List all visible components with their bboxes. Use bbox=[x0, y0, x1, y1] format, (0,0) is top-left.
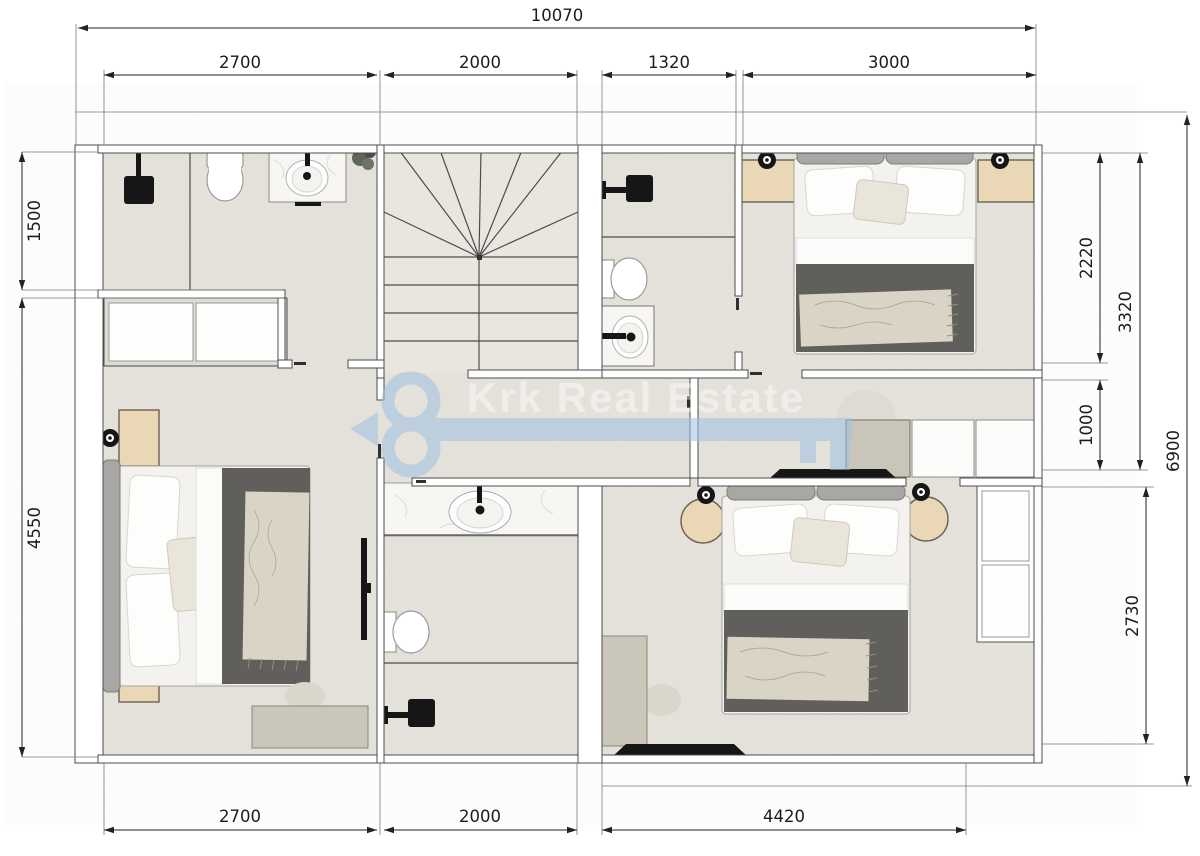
wardrobe bbox=[104, 298, 287, 366]
dim-label: 2000 bbox=[459, 53, 501, 72]
chair bbox=[643, 684, 681, 716]
lamp-icon bbox=[101, 429, 119, 447]
toilet-icon bbox=[384, 611, 429, 653]
dim-label: 1320 bbox=[648, 53, 690, 72]
dim-label: 3000 bbox=[868, 53, 910, 72]
lamp-icon bbox=[697, 486, 715, 504]
double-bed bbox=[794, 147, 976, 354]
floor-plan-drawing: 10070 2700 2000 1320 3000 1500 4550 2220… bbox=[0, 0, 1200, 856]
dim-label: 1000 bbox=[1077, 404, 1096, 446]
sink-vanity bbox=[602, 306, 654, 366]
door-handle bbox=[736, 298, 739, 310]
faucet-icon bbox=[602, 333, 626, 339]
shower-head-icon bbox=[124, 176, 154, 204]
exterior-wall-right bbox=[1034, 145, 1042, 763]
door-handle bbox=[378, 444, 381, 458]
stairs-floor bbox=[384, 150, 578, 373]
dim-label: 3320 bbox=[1116, 291, 1135, 333]
watermark-brand-text: Krk Real Estate bbox=[467, 374, 805, 421]
round-nightstand bbox=[904, 497, 948, 541]
dim-label: 2000 bbox=[459, 807, 501, 826]
sink-vanity bbox=[384, 483, 578, 536]
double-bed bbox=[103, 460, 310, 692]
cabinet bbox=[846, 420, 910, 477]
door-handle bbox=[416, 480, 426, 483]
nightstand bbox=[119, 410, 159, 466]
lamp-icon bbox=[991, 151, 1009, 169]
lamp-icon bbox=[912, 483, 930, 501]
dim-label: 4550 bbox=[25, 507, 44, 549]
toilet-icon bbox=[207, 150, 243, 201]
desk bbox=[252, 706, 368, 748]
desk bbox=[600, 636, 647, 746]
dim-label: 2700 bbox=[219, 807, 261, 826]
dim-label: 2730 bbox=[1123, 595, 1142, 637]
door-handle bbox=[294, 362, 306, 365]
dim-label: 1500 bbox=[25, 200, 44, 242]
dim-label-total-height: 6900 bbox=[1164, 430, 1183, 472]
shower-head-icon bbox=[408, 699, 435, 727]
lamp-icon bbox=[758, 151, 776, 169]
dim-label-total-width: 10070 bbox=[531, 6, 584, 25]
stair-newel bbox=[477, 255, 482, 260]
cabinet bbox=[912, 420, 974, 477]
exterior-wall-bottom bbox=[98, 755, 1042, 763]
round-nightstand bbox=[681, 499, 725, 543]
wardrobe bbox=[977, 486, 1034, 642]
floor-plan-page: 10070 2700 2000 1320 3000 1500 4550 2220… bbox=[0, 0, 1200, 856]
shower-head-icon bbox=[626, 175, 653, 202]
dim-label: 2700 bbox=[219, 53, 261, 72]
tv-icon bbox=[770, 469, 896, 478]
double-bed bbox=[722, 484, 910, 714]
exterior-wall-left bbox=[75, 145, 103, 763]
sink-vanity bbox=[269, 150, 346, 206]
toilet-icon bbox=[602, 258, 647, 300]
dim-label: 2220 bbox=[1077, 237, 1096, 279]
dim-label: 4420 bbox=[763, 807, 805, 826]
shower-arm bbox=[136, 150, 141, 178]
cabinet bbox=[976, 420, 1034, 477]
exterior-wall-top bbox=[98, 145, 1042, 153]
